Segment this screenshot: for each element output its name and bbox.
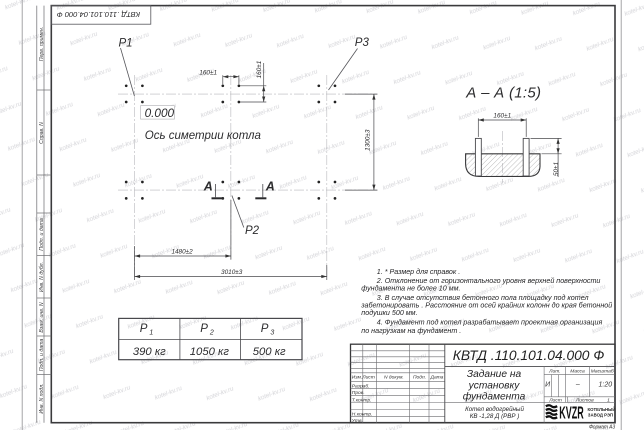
svg-text:Подп.: Подп. <box>413 375 426 381</box>
svg-text:160±1: 160±1 <box>256 60 263 78</box>
svg-text:Справ. N: Справ. N <box>39 122 45 144</box>
svg-text:Лит.: Лит. <box>548 369 560 375</box>
svg-text:Пров.: Пров. <box>352 390 365 396</box>
svg-text:N докум.: N докум. <box>384 375 404 381</box>
svg-text:1:20: 1:20 <box>598 382 612 389</box>
svg-text:А – А (1:5): А – А (1:5) <box>465 84 541 101</box>
svg-text:Масса: Масса <box>570 369 585 375</box>
svg-text:Задание на: Задание на <box>467 369 522 380</box>
svg-text:Ось симетрии котла: Ось симетрии котла <box>145 130 261 142</box>
svg-text:Р3: Р3 <box>355 37 370 49</box>
svg-text:Р2: Р2 <box>245 225 260 237</box>
svg-text:Изм.Лист: Изм.Лист <box>352 375 375 381</box>
svg-text:160±1: 160±1 <box>199 70 217 77</box>
svg-text:3010±3: 3010±3 <box>221 269 243 276</box>
svg-text:Инв. N подл.: Инв. N подл. <box>39 383 45 413</box>
svg-text:Т.контр.: Т.контр. <box>352 397 372 403</box>
svg-text:Подп. и дата: Подп. и дата <box>39 339 45 372</box>
svg-text:Р1: Р1 <box>119 38 133 50</box>
svg-text:4. Фундамент под котел разраба: 4. Фундамент под котел разрабатывает про… <box>377 319 603 327</box>
svg-text:0.000: 0.000 <box>145 106 175 120</box>
svg-text:Перв. примен.: Перв. примен. <box>39 27 45 61</box>
svg-text:Инв. N дубл.: Инв. N дубл. <box>39 262 45 292</box>
svg-text:по нагрузкам на фундамент .: по нагрузкам на фундамент . <box>361 327 461 335</box>
svg-text:Формат А3: Формат А3 <box>589 425 615 430</box>
svg-text:КОТЕЛЬНЫЙ: КОТЕЛЬНЫЙ <box>588 407 616 412</box>
svg-text:1. * Размер для справок .: 1. * Размер для справок . <box>377 268 460 276</box>
svg-text:Взам. инв. N: Взам. инв. N <box>39 302 45 332</box>
svg-text:–: – <box>575 381 580 388</box>
svg-text:Подп. и дата: Подп. и дата <box>39 218 45 251</box>
svg-text:1: 1 <box>607 397 610 403</box>
svg-text:КВТД .110.101.04.000 Ф: КВТД .110.101.04.000 Ф <box>57 10 140 19</box>
svg-text:А: А <box>265 179 275 193</box>
svg-text:Разраб.: Разраб. <box>352 383 370 389</box>
svg-text:КВ -1,28 Д (РВР ): КВ -1,28 Д (РВР ) <box>470 413 520 420</box>
svg-text:установку: установку <box>468 380 521 391</box>
svg-text:КВТД .110.101.04.000 Ф: КВТД .110.101.04.000 Ф <box>453 348 605 363</box>
svg-text:ЗАВОД РЭП: ЗАВОД РЭП <box>588 413 613 418</box>
svg-text:фундамента: фундамента <box>463 391 526 403</box>
svg-text:А: А <box>203 179 213 193</box>
svg-text:1050 кг: 1050 кг <box>190 346 230 358</box>
svg-text:160±1: 160±1 <box>493 113 511 120</box>
svg-text:390 кг: 390 кг <box>133 346 166 358</box>
svg-text:Дата: Дата <box>430 375 444 381</box>
svg-text:Котел водогрейный: Котел водогрейный <box>465 406 524 413</box>
svg-text:KVZR: KVZR <box>559 402 584 422</box>
svg-text:1480±2: 1480±2 <box>171 249 193 256</box>
svg-text:500 кг: 500 кг <box>253 346 286 358</box>
svg-text:Утв.: Утв. <box>352 418 363 424</box>
svg-text:подушки 500 мм.: подушки 500 мм. <box>361 309 417 317</box>
svg-text:50±1: 50±1 <box>553 161 560 176</box>
svg-text:фундамента не более 10 мм.: фундамента не более 10 мм. <box>361 285 460 293</box>
svg-text:Масштаб: Масштаб <box>591 369 614 375</box>
svg-text:1300±3: 1300±3 <box>365 129 372 151</box>
svg-text:Н.контр.: Н.контр. <box>352 411 373 417</box>
